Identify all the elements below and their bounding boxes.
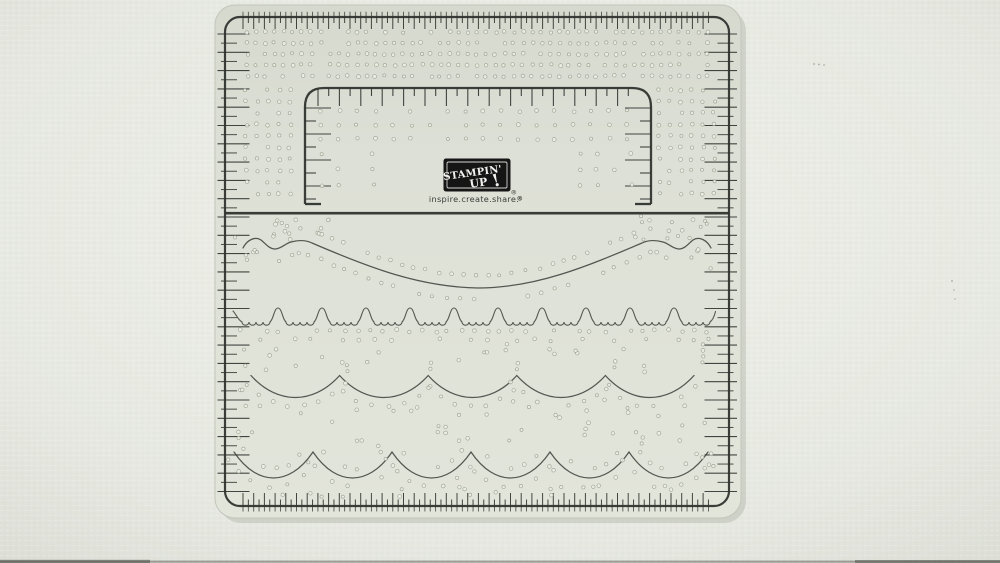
pierce-hole	[619, 396, 622, 399]
pierce-hole	[245, 180, 249, 184]
pierce-hole	[707, 463, 711, 467]
pierce-hole	[466, 52, 469, 55]
pierce-hole	[659, 63, 663, 67]
pierce-hole	[502, 485, 505, 488]
pierce-hole	[703, 219, 706, 222]
pierce-hole	[487, 273, 491, 277]
pierce-hole	[667, 229, 671, 233]
pierce-hole	[402, 31, 405, 34]
pierce-hole	[308, 63, 312, 67]
pierce-hole	[267, 157, 271, 161]
pierce-hole	[711, 111, 714, 114]
pierce-hole	[428, 51, 432, 55]
pierce-hole	[465, 124, 468, 127]
pierce-hole	[650, 74, 654, 78]
pierce-hole	[383, 53, 387, 57]
pierce-hole	[336, 75, 340, 79]
pierce-hole	[263, 30, 267, 34]
pierce-hole	[535, 454, 538, 457]
pierce-hole	[267, 192, 270, 195]
pierce-hole	[373, 75, 377, 79]
pierce-hole	[625, 122, 629, 126]
pierce-hole	[696, 248, 700, 252]
pierce-hole	[498, 397, 501, 400]
pierce-hole	[326, 218, 330, 222]
pierce-hole	[518, 110, 522, 114]
pierce-hole	[469, 465, 473, 469]
pierce-hole	[642, 238, 645, 241]
pierce-hole	[356, 63, 360, 67]
pierce-hole	[318, 109, 322, 113]
pierce-hole	[267, 134, 271, 138]
pierce-hole	[701, 343, 704, 346]
pierce-hole	[364, 41, 367, 44]
pierce-hole	[668, 169, 672, 173]
pierce-hole	[447, 63, 451, 67]
pierce-hole	[679, 89, 683, 93]
pierce-hole	[549, 493, 553, 497]
pierce-hole	[277, 111, 281, 115]
pierce-hole	[259, 338, 262, 341]
pierce-hole	[400, 488, 403, 491]
pierce-hole	[694, 384, 698, 388]
pierce-hole	[548, 52, 552, 56]
pierce-hole	[510, 271, 513, 274]
pierce-hole	[374, 124, 378, 128]
pierce-hole	[679, 158, 683, 162]
pierce-hole	[641, 31, 644, 34]
pierce-hole	[354, 123, 357, 126]
pierce-hole	[706, 41, 710, 45]
pierce-hole	[608, 123, 612, 127]
pierce-hole	[713, 157, 716, 160]
pierce-hole	[602, 271, 605, 274]
pierce-hole	[438, 75, 441, 78]
pierce-hole	[659, 192, 662, 195]
pierce-hole	[299, 412, 302, 415]
pierce-hole	[320, 41, 323, 44]
pierce-hole	[690, 168, 693, 171]
pierce-hole	[300, 41, 304, 45]
pierce-hole	[445, 329, 448, 332]
pierce-hole	[330, 392, 334, 396]
pierce-hole	[605, 41, 608, 44]
pierce-hole	[475, 31, 478, 34]
pierce-hole	[669, 88, 673, 92]
pierce-hole	[255, 251, 258, 254]
pierce-hole	[607, 108, 611, 112]
pierce-hole	[680, 111, 683, 114]
pierce-hole	[450, 459, 454, 463]
pierce-hole	[702, 145, 705, 148]
pierce-hole	[377, 256, 380, 259]
pierce-hole	[370, 152, 374, 156]
pierce-hole	[436, 430, 439, 433]
pierce-hole	[330, 236, 334, 240]
pierce-hole	[287, 232, 290, 235]
pierce-hole	[254, 64, 257, 67]
pierce-hole	[539, 52, 543, 56]
pierce-hole	[410, 74, 413, 77]
pierce-hole	[611, 432, 614, 435]
pierce-hole	[276, 192, 280, 196]
pierce-hole	[522, 390, 525, 393]
pierce-hole	[584, 427, 588, 431]
pierce-hole	[475, 74, 479, 78]
pierce-hole	[522, 463, 526, 467]
pierce-hole	[469, 338, 472, 341]
pierce-hole	[494, 75, 497, 78]
pierce-hole	[265, 329, 269, 333]
pierce-hole	[678, 63, 681, 66]
pierce-hole	[657, 99, 661, 103]
pierce-hole	[641, 74, 644, 77]
pierce-hole	[299, 30, 303, 34]
pierce-hole	[463, 487, 467, 491]
pierce-hole	[667, 328, 671, 332]
pierce-hole	[448, 52, 452, 56]
pierce-hole	[652, 485, 655, 488]
pierce-hole	[483, 351, 486, 354]
pierce-hole	[254, 122, 258, 126]
pierce-hole	[237, 430, 241, 434]
pierce-hole	[657, 112, 660, 115]
pierce-hole	[629, 151, 633, 155]
pierce-hole	[299, 63, 302, 66]
pierce-hole	[707, 337, 710, 340]
pierce-hole	[242, 447, 245, 450]
pierce-hole	[357, 338, 361, 342]
pierce-hole	[524, 269, 527, 272]
pierce-hole	[410, 53, 413, 56]
pierce-hole	[669, 75, 672, 78]
pierce-hole	[370, 403, 374, 407]
pierce-hole	[328, 62, 331, 65]
pierce-hole	[440, 395, 443, 398]
pierce-hole	[481, 109, 485, 113]
pierce-hole	[466, 31, 469, 34]
pierce-hole	[566, 283, 570, 287]
pierce-hole	[307, 461, 310, 464]
pierce-hole	[701, 361, 704, 364]
pierce-hole	[376, 444, 380, 448]
pierce-hole	[642, 364, 646, 368]
pierce-hole	[387, 405, 391, 409]
pierce-hole	[457, 31, 460, 34]
pierce-hole	[626, 411, 630, 415]
pierce-hole	[614, 63, 618, 67]
pierce-hole	[373, 183, 376, 186]
pierce-hole	[554, 124, 557, 127]
pierce-hole	[273, 64, 276, 67]
pierce-hole	[419, 40, 423, 44]
pierce-hole	[621, 51, 625, 55]
pierce-hole	[585, 53, 588, 56]
pierce-hole	[590, 137, 593, 140]
pierce-hole	[548, 347, 552, 351]
pierce-hole	[585, 75, 588, 78]
pierce-hole	[690, 111, 693, 114]
pierce-hole	[468, 493, 471, 496]
pierce-hole	[227, 458, 231, 462]
pierce-hole	[521, 51, 525, 55]
pierce-hole	[457, 358, 461, 362]
pierce-hole	[688, 53, 691, 56]
pierce-hole	[640, 221, 643, 224]
pierce-hole	[464, 137, 467, 140]
pierce-hole	[327, 74, 330, 77]
pierce-hole	[585, 29, 589, 33]
pierce-hole	[585, 42, 588, 45]
pierce-hole	[316, 400, 320, 404]
pierce-hole	[421, 52, 424, 55]
pierce-hole	[428, 123, 431, 126]
pierce-hole	[341, 495, 344, 498]
pierce-hole	[552, 109, 556, 113]
pierce-hole	[688, 236, 691, 239]
pierce-hole	[255, 157, 258, 160]
pierce-hole	[690, 122, 694, 126]
pierce-hole	[651, 42, 654, 45]
pierce-hole	[320, 153, 323, 156]
pierce-hole	[244, 404, 248, 408]
pierce-hole	[374, 42, 378, 46]
pierce-hole	[524, 330, 528, 334]
pierce-hole	[681, 424, 684, 427]
pierce-hole	[495, 31, 498, 34]
pierce-hole	[329, 52, 332, 55]
pierce-hole	[282, 41, 286, 45]
pierce-hole	[712, 122, 716, 126]
pierce-hole	[244, 145, 248, 149]
pierce-hole	[408, 136, 412, 140]
pierce-hole	[701, 456, 704, 459]
pierce-hole	[604, 74, 607, 77]
pierce-hole	[511, 400, 515, 404]
pierce-hole	[288, 100, 292, 104]
pierce-hole	[274, 347, 278, 351]
pierce-hole	[640, 215, 643, 218]
pierce-hole	[343, 465, 347, 469]
pierce-hole	[701, 348, 705, 352]
pierce-hole	[712, 464, 715, 467]
pierce-hole	[557, 75, 561, 79]
pierce-hole	[660, 42, 664, 46]
pierce-hole	[660, 466, 664, 470]
pierce-hole	[346, 53, 350, 57]
pierce-hole	[713, 180, 716, 183]
pierce-hole	[355, 468, 358, 471]
pierce-hole	[281, 53, 285, 57]
pierce-hole	[300, 52, 304, 56]
pierce-hole	[532, 41, 536, 45]
pierce-hole	[278, 134, 281, 137]
pierce-hole	[373, 53, 377, 57]
pierce-hole	[594, 30, 597, 33]
pierce-hole	[572, 256, 576, 260]
pierce-hole	[336, 137, 340, 141]
pierce-hole	[657, 123, 661, 127]
pierce-hole	[690, 146, 693, 149]
pierce-hole	[603, 63, 607, 67]
pierce-hole	[392, 41, 395, 44]
pierce-hole	[641, 329, 644, 332]
pierce-hole	[486, 455, 490, 459]
pierce-hole	[535, 124, 538, 127]
pierce-hole	[390, 338, 394, 342]
pierce-hole	[458, 485, 461, 488]
pierce-hole	[657, 88, 660, 91]
pierce-hole	[418, 394, 421, 397]
pierce-hole	[616, 451, 619, 454]
pierce-hole	[384, 457, 387, 460]
pierce-hole	[625, 138, 628, 141]
pierce-hole	[298, 453, 301, 456]
pierce-hole	[570, 138, 574, 142]
pierce-hole	[243, 348, 246, 351]
pierce-hole	[705, 52, 709, 56]
pierce-hole	[569, 42, 572, 45]
pierce-hole	[534, 477, 537, 480]
pierce-hole	[652, 328, 656, 332]
pierce-hole	[255, 134, 258, 137]
pierce-hole	[630, 183, 634, 187]
pierce-hole	[411, 266, 415, 270]
pierce-hole	[548, 465, 552, 469]
pierce-hole	[613, 41, 617, 45]
pierce-hole	[529, 74, 533, 78]
pierce-hole	[587, 64, 590, 67]
pierce-hole	[614, 53, 618, 57]
pierce-hole	[549, 340, 552, 343]
pierce-hole	[481, 123, 484, 126]
pierce-hole	[692, 339, 695, 342]
pierce-hole	[330, 480, 334, 484]
pierce-hole	[457, 439, 461, 443]
pierce-hole	[553, 287, 556, 290]
pierce-hole	[275, 219, 278, 222]
pierce-hole	[690, 191, 694, 195]
pierce-hole	[668, 30, 672, 34]
pierce-hole	[583, 433, 587, 437]
pierce-hole	[402, 451, 406, 455]
pierce-hole	[558, 416, 562, 420]
pierce-hole	[346, 484, 350, 488]
pierce-hole	[684, 462, 688, 466]
pierce-hole	[389, 258, 393, 262]
pierce-hole	[344, 381, 348, 385]
pierce-hole	[683, 404, 687, 408]
pierce-hole	[516, 361, 520, 365]
pierce-hole	[582, 486, 585, 489]
pierce-hole	[515, 339, 519, 343]
pierce-hole	[411, 124, 414, 127]
pierce-hole	[421, 62, 425, 66]
pierce-hole	[288, 112, 291, 115]
pierce-hole	[427, 386, 430, 389]
pierce-hole	[332, 264, 336, 268]
pierce-hole	[289, 134, 293, 138]
pierce-hole	[474, 274, 477, 277]
pierce-hole	[691, 218, 695, 222]
pierce-hole	[667, 52, 670, 55]
pierce-hole	[423, 267, 427, 271]
pierce-hole	[330, 420, 333, 423]
pierce-hole	[553, 352, 557, 356]
pierce-hole	[291, 63, 295, 67]
pierce-hole	[354, 399, 357, 402]
pierce-hole	[384, 41, 387, 44]
pierce-hole	[289, 169, 293, 173]
pierce-hole	[437, 425, 440, 428]
pierce-hole	[306, 253, 310, 257]
pierce-hole	[494, 63, 497, 66]
pierce-hole	[493, 53, 497, 57]
pierce-hole	[277, 181, 280, 184]
pierce-hole	[440, 63, 444, 67]
pierce-hole	[302, 474, 305, 477]
pierce-hole	[265, 168, 269, 172]
pierce-hole	[347, 42, 351, 46]
pierce-hole	[450, 272, 454, 276]
pierce-hole	[465, 63, 469, 67]
pierce-hole	[594, 167, 598, 171]
pierce-hole	[344, 329, 348, 333]
pierce-hole	[320, 495, 323, 498]
pierce-hole	[476, 41, 479, 44]
pierce-hole	[634, 431, 637, 434]
pierce-hole	[393, 64, 397, 68]
pierce-hole	[701, 111, 705, 115]
pierce-hole	[577, 30, 581, 34]
pierce-hole	[566, 31, 570, 35]
pierce-hole	[608, 383, 611, 386]
pierce-hole	[554, 413, 558, 417]
pierce-hole	[567, 53, 570, 56]
pierce-hole	[381, 330, 385, 334]
pierce-hole	[689, 88, 693, 92]
pierce-hole	[309, 42, 313, 46]
pierce-hole	[319, 138, 322, 141]
pierce-hole	[281, 493, 285, 497]
pierce-hole	[475, 64, 479, 68]
pierce-hole	[438, 52, 442, 56]
pierce-hole	[257, 393, 260, 396]
pierce-hole	[341, 339, 344, 342]
pierce-hole	[444, 431, 448, 435]
pierce-hole	[678, 439, 682, 443]
pierce-hole	[520, 428, 523, 431]
pierce-hole	[658, 180, 661, 183]
pierce-hole	[484, 52, 487, 55]
pierce-hole	[531, 31, 534, 34]
pierce-hole	[278, 100, 282, 104]
pierce-hole	[276, 330, 280, 334]
pierce-hole	[677, 30, 680, 33]
pierce-hole	[596, 152, 600, 156]
pierce-hole	[512, 74, 516, 78]
pierce-hole	[290, 123, 293, 126]
pierce-hole	[697, 52, 701, 56]
pierce-hole	[301, 74, 305, 78]
pierce-hole	[319, 226, 323, 230]
pierce-hole	[285, 405, 289, 409]
pierce-hole	[630, 329, 633, 332]
pierce-hole	[365, 74, 369, 78]
pierce-hole	[374, 136, 378, 140]
pierce-hole	[278, 88, 282, 92]
pierce-hole	[703, 466, 707, 470]
